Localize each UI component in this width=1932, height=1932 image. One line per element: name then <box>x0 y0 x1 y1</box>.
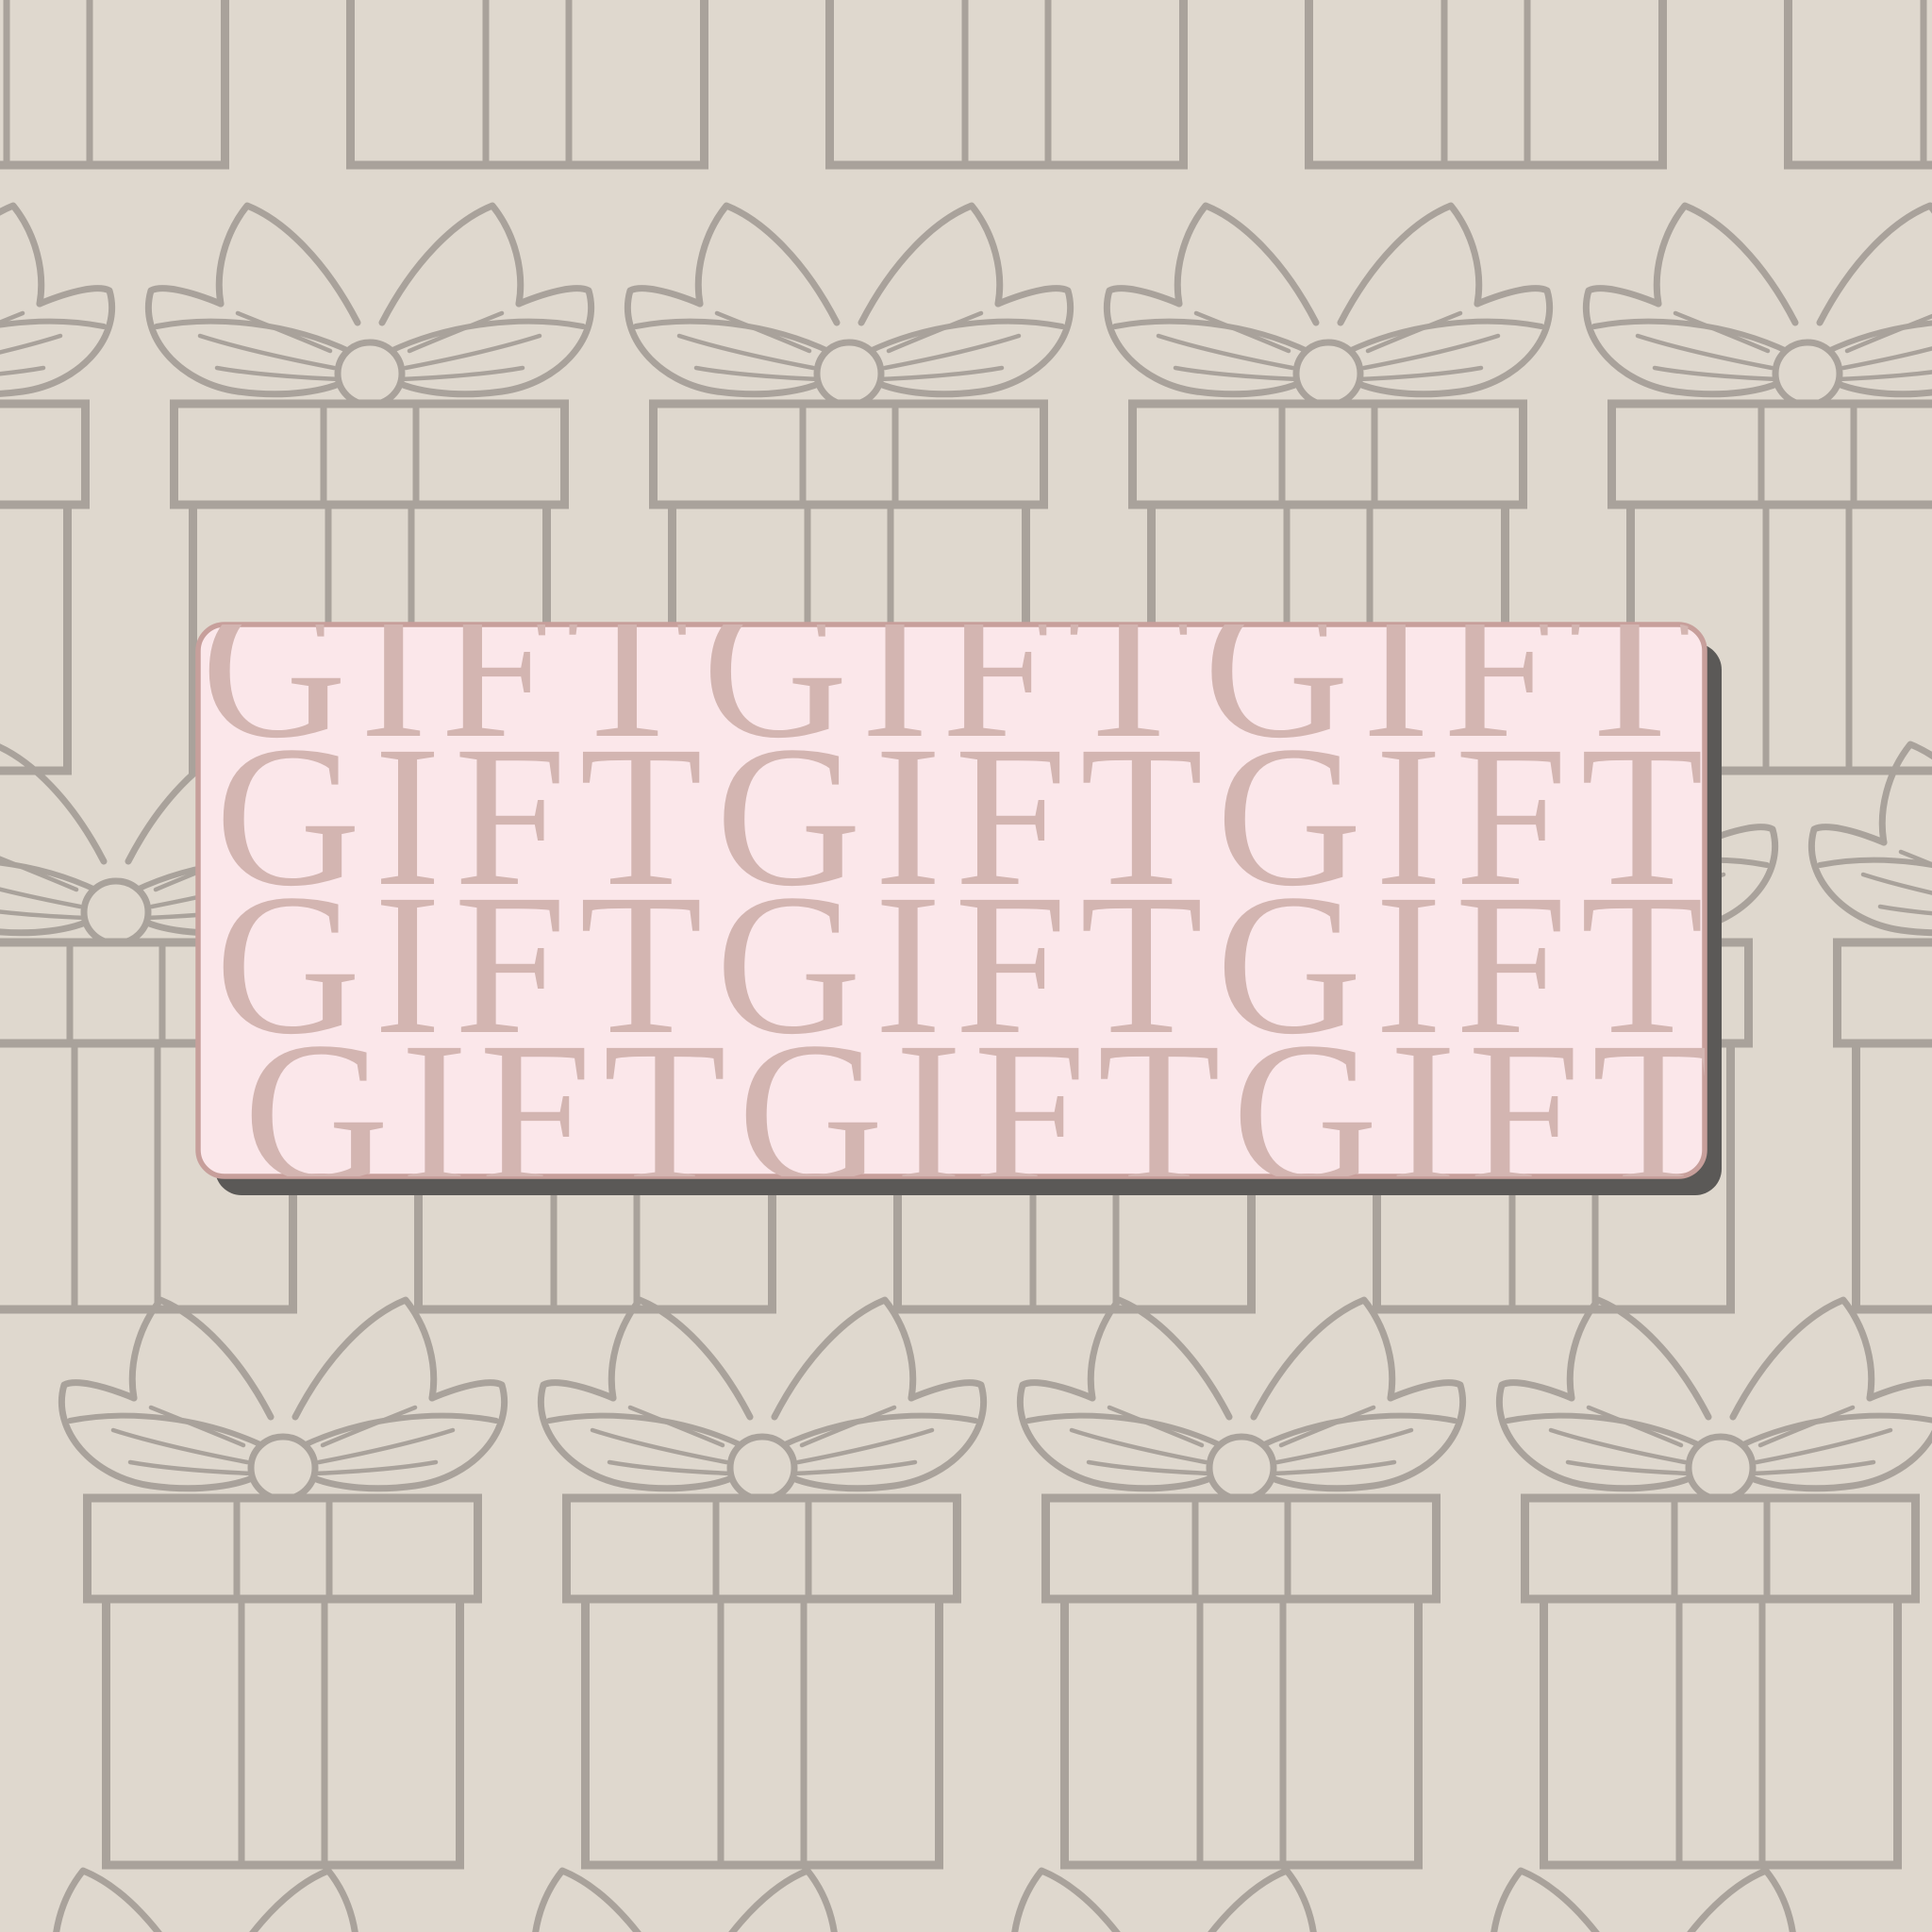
gift-card-mockup: GIFTGIFTGIFT GIFTGIFTGIFT GIFTGIFTGIFT G… <box>0 0 1932 1932</box>
gift-box-outline-icon <box>785 0 1227 165</box>
gift-box-outline-icon <box>1264 0 1707 165</box>
gift-box-outline-icon <box>0 0 270 165</box>
gift-card: GIFTGIFTGIFT GIFTGIFTGIFT GIFTGIFTGIFT G… <box>198 557 1715 1224</box>
gift-box-outline-icon <box>306 0 748 165</box>
mockup-scene: GIFTGIFTGIFT GIFTGIFTGIFT GIFTGIFTGIFT G… <box>0 0 1932 1932</box>
